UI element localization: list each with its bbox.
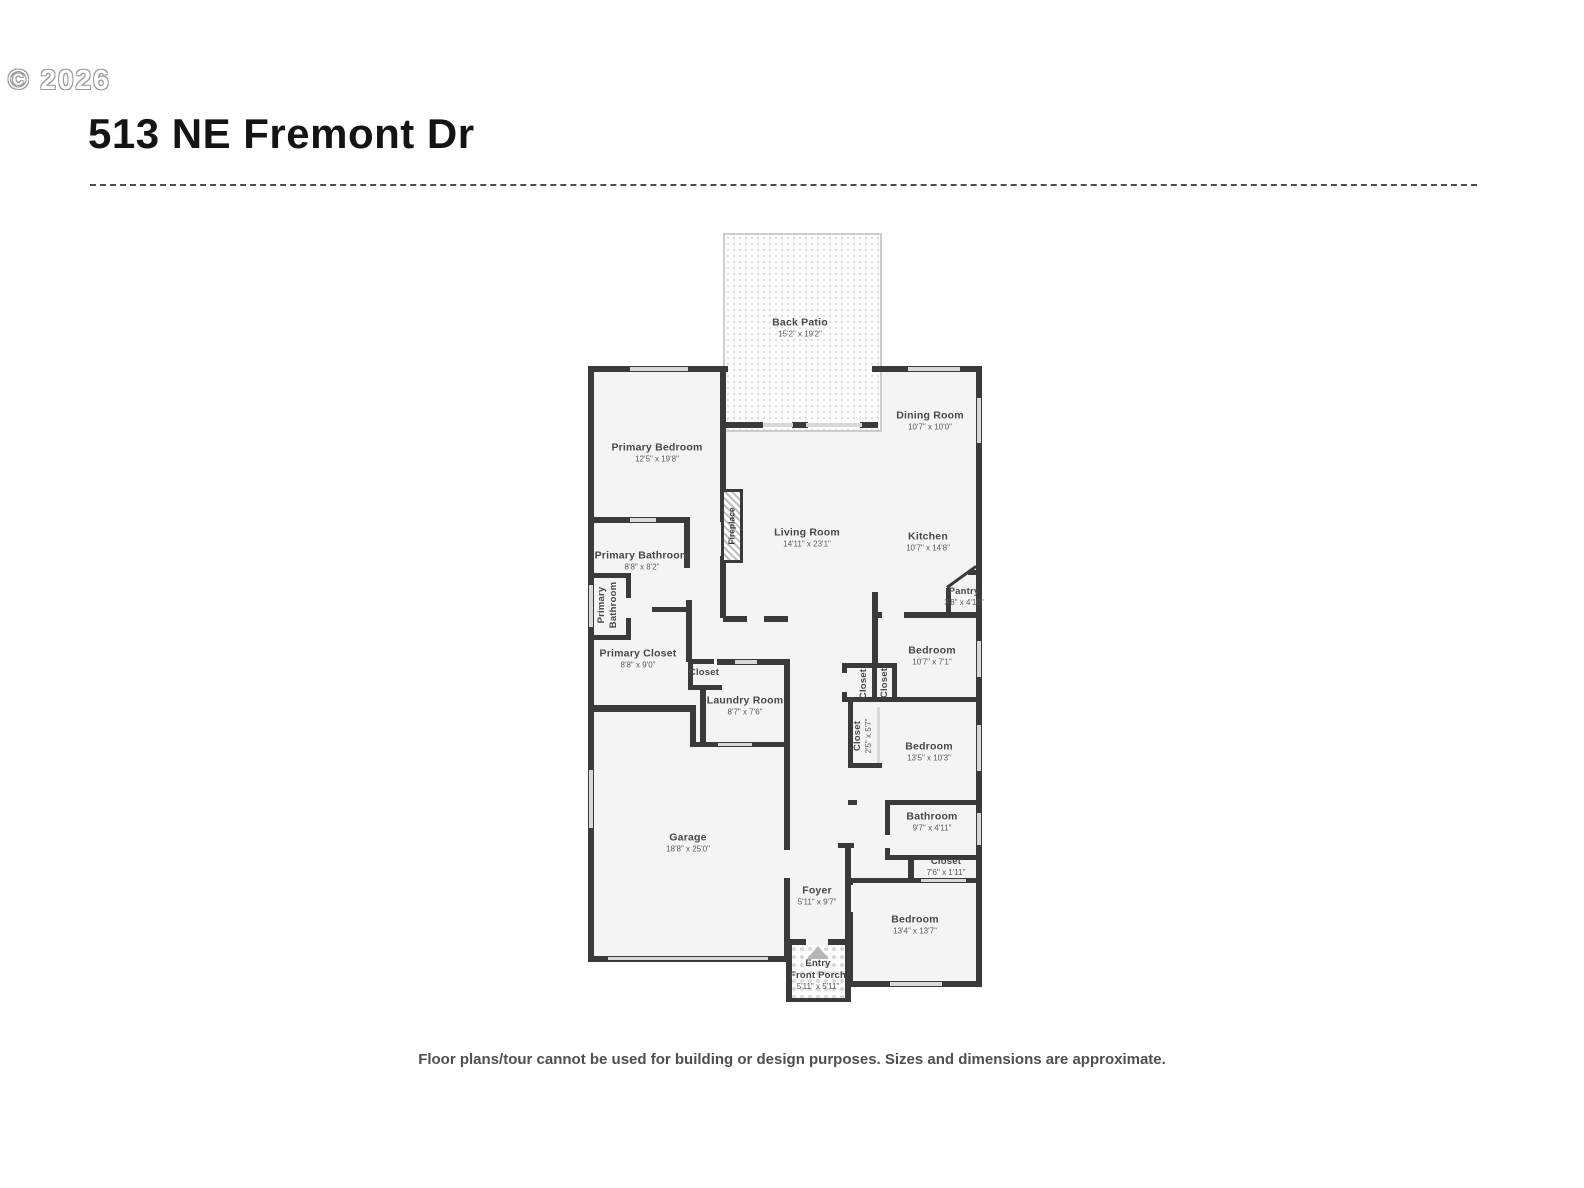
fireplace: Fireplace: [721, 489, 743, 563]
room-label-hall-closet: Closet: [689, 667, 719, 679]
room-label-garage: Garage 18'8" x 25'0": [666, 831, 710, 854]
wall: [686, 600, 692, 662]
window: [977, 725, 981, 771]
room-label-primary-closet: Primary Closet 8'8" x 9'0": [600, 647, 677, 670]
wall: [845, 843, 851, 945]
room-label-entry-front-porch: Entry Front Porch 5'11" x 5'11": [790, 958, 846, 992]
entry-arrow-icon: [807, 946, 829, 959]
wall: [591, 635, 631, 640]
room-label-laundry-room: Laundry Room 8'7" x 7'6": [707, 694, 784, 717]
wall: [688, 659, 714, 664]
room-label-bathroom-closet: Closet 7'6" x 1'11": [927, 856, 966, 878]
wall: [872, 618, 878, 663]
room-label-closet-b: Closet: [879, 668, 891, 698]
wall: [588, 700, 594, 962]
window: [806, 423, 862, 427]
room-label-kitchen: Kitchen 10'7" x 14'8": [906, 530, 950, 553]
wall: [848, 800, 857, 805]
window: [877, 707, 880, 763]
room-label-bedroom-2-closet: Closet 2'5" x 5'7": [852, 719, 874, 754]
wall: [764, 616, 788, 622]
window: [589, 585, 593, 627]
room-label-bedroom-1: Bedroom 10'7" x 7'1": [908, 644, 956, 667]
wall: [720, 556, 726, 618]
room-label-closet-a: Closet: [858, 669, 870, 699]
wall: [860, 422, 878, 428]
room-floor: [790, 712, 851, 945]
room-label-bedroom-2: Bedroom 13'5" x 10'3": [905, 740, 953, 763]
wall: [723, 422, 763, 428]
window: [977, 398, 981, 443]
wall: [690, 707, 696, 747]
wall: [784, 878, 790, 962]
wall: [652, 607, 690, 612]
wall: [872, 668, 877, 697]
wall: [700, 690, 706, 742]
wall: [784, 659, 790, 850]
window: [608, 957, 768, 960]
room-label-primary-bathroom: Primary Bathroom 8'8" x 8'2": [595, 549, 690, 572]
window: [589, 770, 593, 828]
room-label-bathroom: Bathroom 9'7" x 4'11": [906, 810, 957, 833]
room-label-fireplace: Fireplace: [727, 507, 737, 544]
wall: [626, 573, 631, 598]
wall: [723, 616, 747, 622]
room-label-primary-bedroom: Primary Bedroom 12'5" x 19'8": [611, 441, 702, 464]
wall: [842, 663, 847, 673]
room-label-back-patio: Back Patio 15'2" x 19'2": [772, 316, 828, 339]
window: [908, 367, 960, 371]
wall: [786, 998, 851, 1002]
window: [977, 641, 981, 677]
room-label-bedroom-3: Bedroom 13'4" x 13'7": [891, 913, 939, 936]
wall: [848, 763, 882, 768]
wall: [588, 705, 696, 712]
window: [718, 743, 752, 746]
room-label-dining-room: Dining Room 10'7" x 10'0": [896, 409, 964, 432]
window: [977, 813, 981, 845]
window: [630, 518, 656, 522]
wall: [588, 366, 594, 712]
wall: [591, 573, 630, 578]
room-label-primary-bathroom-wc: Primary Bathroom: [596, 582, 620, 628]
window: [763, 423, 793, 427]
window: [735, 660, 757, 664]
room-label-living-room: Living Room 14'11" x 23'1": [774, 526, 840, 549]
disclaimer-text: Floor plans/tour cannot be used for buil…: [0, 1051, 1584, 1068]
room-label-foyer: Foyer 5'11" x 9'7": [798, 884, 837, 907]
wall: [885, 800, 982, 805]
wall: [885, 805, 890, 835]
wall: [904, 612, 982, 618]
window: [890, 982, 942, 986]
room-label-pantry: Pantry 3'8" x 4'10": [944, 586, 983, 608]
floor-plan: Fireplace Back Patio 15'2" x 19'2" Prima…: [0, 0, 1584, 1188]
window: [630, 367, 688, 371]
window: [921, 879, 966, 882]
wall: [838, 843, 854, 848]
